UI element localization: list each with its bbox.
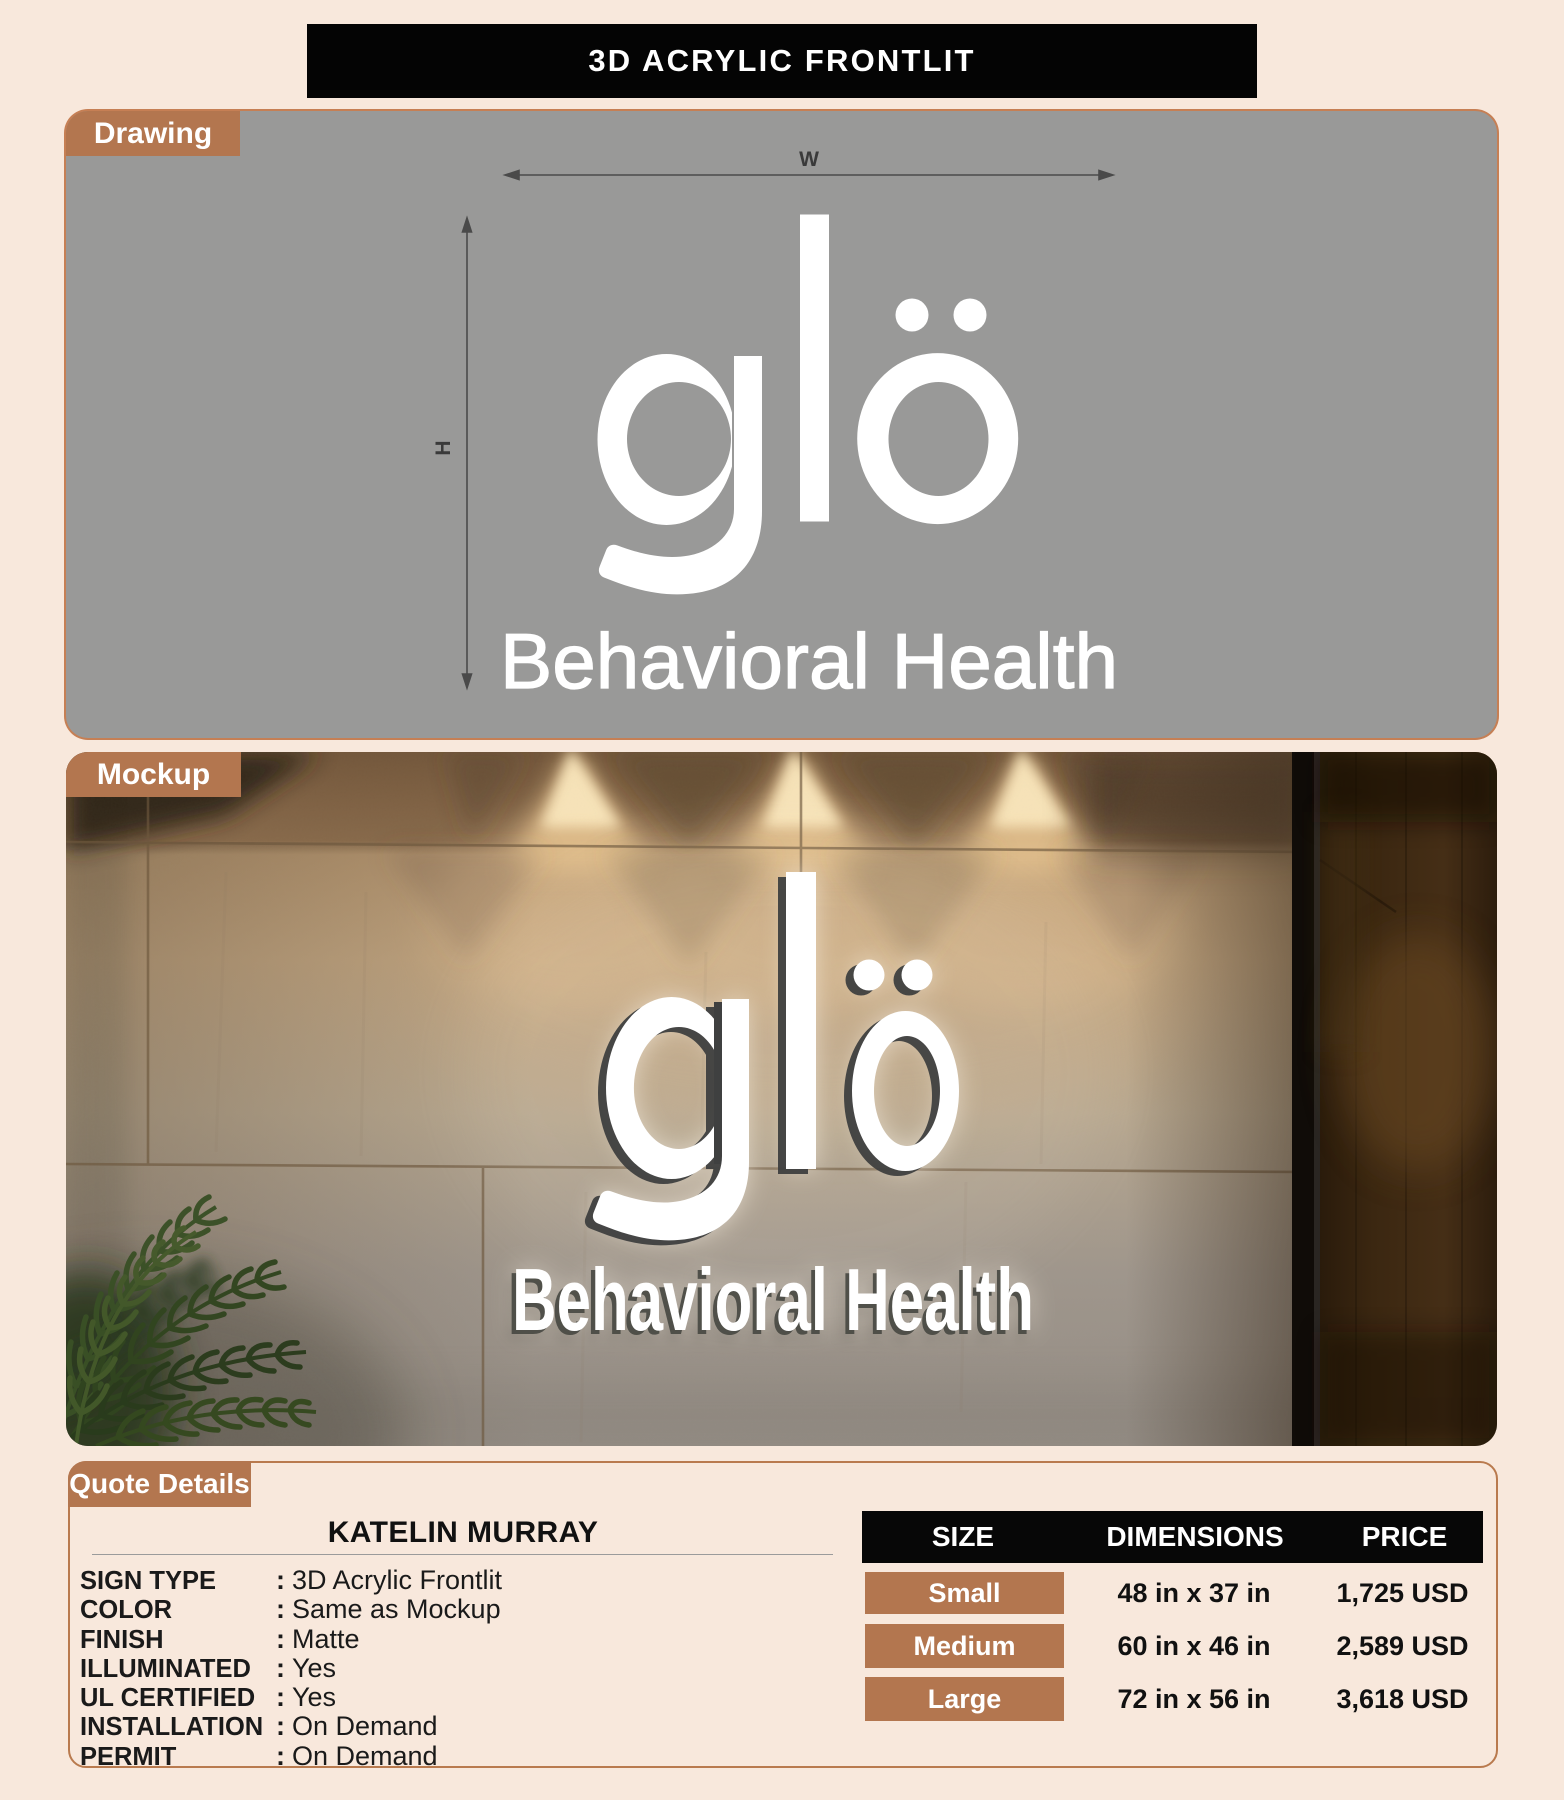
svg-text:W: W bbox=[799, 148, 819, 171]
svg-text:Behavioral Health: Behavioral Health bbox=[500, 617, 1118, 705]
svg-text:H: H bbox=[432, 440, 455, 455]
svg-text:Behavioral Health: Behavioral Health bbox=[512, 1250, 1034, 1349]
